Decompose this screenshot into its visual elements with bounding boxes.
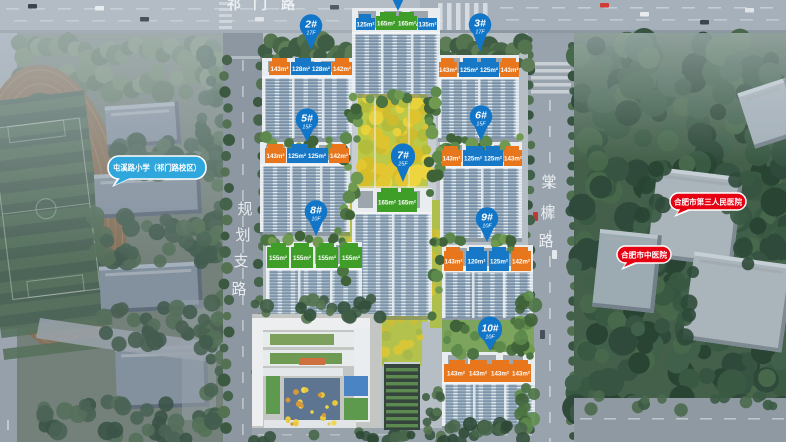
svg-text:合肥市中医院: 合肥市中医院 <box>621 250 667 260</box>
svg-text:10F: 10F <box>311 217 321 223</box>
svg-text:3#: 3# <box>474 18 486 30</box>
svg-text:142m²: 142m² <box>512 258 530 265</box>
svg-text:143m²: 143m² <box>443 155 461 162</box>
svg-text:143m²: 143m² <box>469 370 487 377</box>
svg-text:6#: 6# <box>475 110 487 122</box>
svg-text:155m²: 155m² <box>318 255 336 262</box>
svg-text:165m²: 165m² <box>377 20 395 27</box>
svg-text:165m²: 165m² <box>398 20 416 27</box>
svg-text:143m²: 143m² <box>504 155 522 162</box>
svg-text:125m²: 125m² <box>480 67 498 74</box>
svg-text:143m²: 143m² <box>447 370 465 377</box>
svg-text:10F: 10F <box>482 224 492 230</box>
svg-text:120m²: 120m² <box>468 258 486 265</box>
svg-text:规: 规 <box>237 201 252 218</box>
svg-text:17F: 17F <box>306 31 316 37</box>
svg-text:125m²: 125m² <box>308 153 326 160</box>
svg-text:7#: 7# <box>397 150 409 162</box>
svg-text:路: 路 <box>231 281 246 298</box>
svg-text:143m²: 143m² <box>491 370 509 377</box>
svg-text:155m²: 155m² <box>293 255 311 262</box>
svg-text:142m²: 142m² <box>330 153 348 160</box>
svg-text:125m²: 125m² <box>288 153 306 160</box>
svg-text:143m²: 143m² <box>271 66 289 73</box>
svg-text:143m²: 143m² <box>512 370 530 377</box>
svg-text:143m²: 143m² <box>445 258 463 265</box>
svg-text:125m²: 125m² <box>357 21 375 28</box>
svg-text:125m²: 125m² <box>464 155 482 162</box>
svg-text:路: 路 <box>538 233 553 250</box>
svg-text:165m²: 165m² <box>378 199 396 206</box>
svg-text:10F: 10F <box>485 335 495 341</box>
svg-text:125m²: 125m² <box>460 67 478 74</box>
svg-text:门: 门 <box>253 0 267 12</box>
svg-text:165m²: 165m² <box>398 199 416 206</box>
svg-text:屯溪路小学（祁门路校区）: 屯溪路小学（祁门路校区） <box>113 163 201 173</box>
svg-text:2#: 2# <box>304 19 317 31</box>
svg-text:135m²: 135m² <box>419 21 437 28</box>
svg-text:支: 支 <box>233 253 248 270</box>
svg-text:143m²: 143m² <box>439 67 457 74</box>
svg-text:128m²: 128m² <box>292 66 310 73</box>
svg-text:143m²: 143m² <box>267 153 285 160</box>
svg-text:8#: 8# <box>310 205 322 217</box>
svg-text:5#: 5# <box>301 113 313 125</box>
svg-text:合肥市第三人民医院: 合肥市第三人民医院 <box>674 197 742 207</box>
svg-text:棠: 棠 <box>541 174 556 191</box>
svg-text:155m²: 155m² <box>342 255 360 262</box>
svg-text:10#: 10# <box>482 324 499 335</box>
svg-text:142m²: 142m² <box>333 66 351 73</box>
svg-text:125m²: 125m² <box>490 258 508 265</box>
svg-text:9#: 9# <box>481 212 493 224</box>
svg-text:155m²: 155m² <box>269 255 287 262</box>
svg-text:15F: 15F <box>476 122 486 128</box>
svg-text:25F: 25F <box>397 162 408 168</box>
svg-text:17F: 17F <box>475 30 485 36</box>
svg-text:路: 路 <box>281 0 296 12</box>
svg-text:143m²: 143m² <box>501 67 519 74</box>
svg-text:15F: 15F <box>302 125 312 131</box>
svg-text:125m²: 125m² <box>484 155 502 162</box>
svg-text:樨: 樨 <box>540 205 555 222</box>
svg-text:祁: 祁 <box>227 0 241 12</box>
svg-text:划: 划 <box>235 227 250 244</box>
svg-text:128m²: 128m² <box>312 66 330 73</box>
